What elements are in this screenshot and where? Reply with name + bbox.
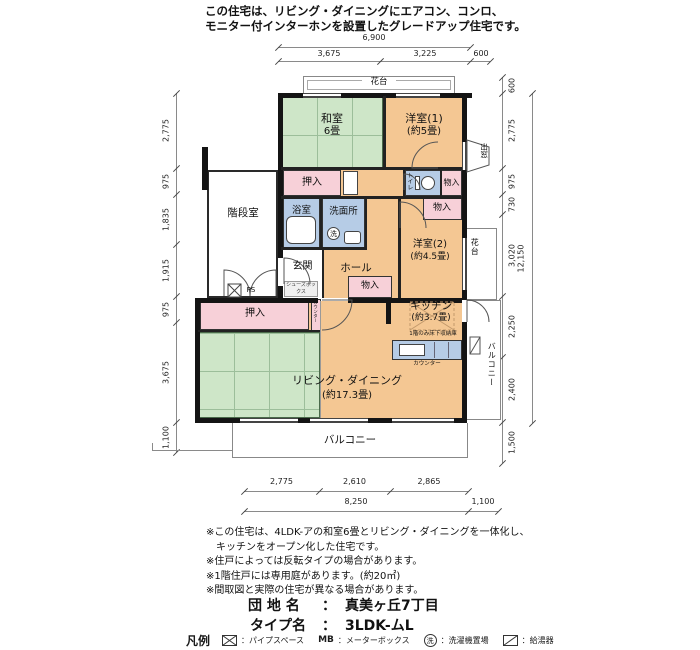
note-line: キッチンをオープン化した住宅です。 [206, 541, 530, 556]
pipe-space-symbol [228, 284, 241, 297]
hall-label: ホール [326, 262, 386, 274]
estate-name-value: 真美ヶ丘7丁目 [345, 595, 439, 615]
bay-window-label: 出窓 [479, 143, 488, 158]
oshiire-bottom-label: 押入 [225, 308, 285, 320]
estate-name-label: 団 地 名 [248, 595, 300, 615]
genkan-label: 玄関 [283, 261, 322, 273]
water-heater-icon [503, 635, 518, 646]
door-arc-yoshitsu1 [412, 142, 438, 168]
yoshitsu2-size: (約4.5畳) [398, 252, 462, 262]
toilet-label: トイレ [405, 172, 412, 190]
door-arc-living [322, 300, 352, 330]
estate-name-separator: ： [322, 595, 336, 615]
yoshitsu2-label: 洋室(2) [398, 239, 462, 251]
living-label: リビング・ダイニング [272, 375, 422, 388]
washroom-label: 洗面所 [321, 207, 366, 218]
mono-a-label: 物入 [440, 178, 463, 187]
kitchen-size: (約3.7畳) [398, 313, 464, 323]
water-heater-symbol [470, 337, 480, 354]
legend-heater-label: ：給湯器 [522, 635, 554, 646]
floor-plan-page: この住宅は、リビング・ダイニングにエアコン、コンロ、 モニター付インターホンを設… [0, 0, 700, 650]
bath-label: 浴室 [283, 206, 320, 217]
stairs-label: 階段室 [212, 207, 274, 219]
door-arc-kitchen-balcony [467, 300, 489, 322]
legend-wash-label: ：洗濯機置場 [441, 635, 489, 646]
legend-mb-symbol: MB [318, 635, 334, 645]
yoshitsu1-size: (約5畳) [389, 126, 459, 138]
pipe-space-icon [222, 635, 237, 646]
kitchen-counter-label: カウンター [398, 361, 456, 367]
oshiire-top-label: 押入 [287, 177, 337, 189]
mono-b-label: 物入 [421, 203, 463, 213]
kitchen-label: キッチン [398, 300, 464, 312]
legend-mb-label: ：メーターボックス [338, 635, 410, 646]
legend-pipe-label: ：パイプスペース [241, 635, 304, 646]
washitsu-label: 和室 [302, 113, 362, 126]
yoshitsu1-label: 洋室(1) [389, 113, 459, 126]
washitsu-size: 6畳 [302, 126, 362, 138]
note-line: ※住戸によっては反転タイプの場合があります。 [206, 555, 530, 570]
washing-machine-icon: 洗 [424, 634, 437, 647]
note-line: ※1階住戸には専用庭があります。(約20㎡) [206, 570, 530, 585]
legend-title: 凡例 [186, 632, 210, 649]
note-line: ※この住宅は、4LDK-アの和室6畳とリビング・ダイニングを一体化し、 [206, 526, 530, 541]
kitchen-floor-note: 1階のみ床下収納庫 [402, 331, 464, 337]
legend: 凡例 ：パイプスペース MB ：メーターボックス 洗 ：洗濯機置場 ：給湯器 [186, 632, 554, 648]
mono-c-label: 物入 [349, 281, 391, 291]
living-size: (約17.3畳) [272, 390, 422, 402]
notes-block: ※この住宅は、4LDK-アの和室6畳とリビング・ダイニングを一体化し、 キッチン… [206, 526, 530, 599]
ps-label: PS [243, 286, 259, 294]
